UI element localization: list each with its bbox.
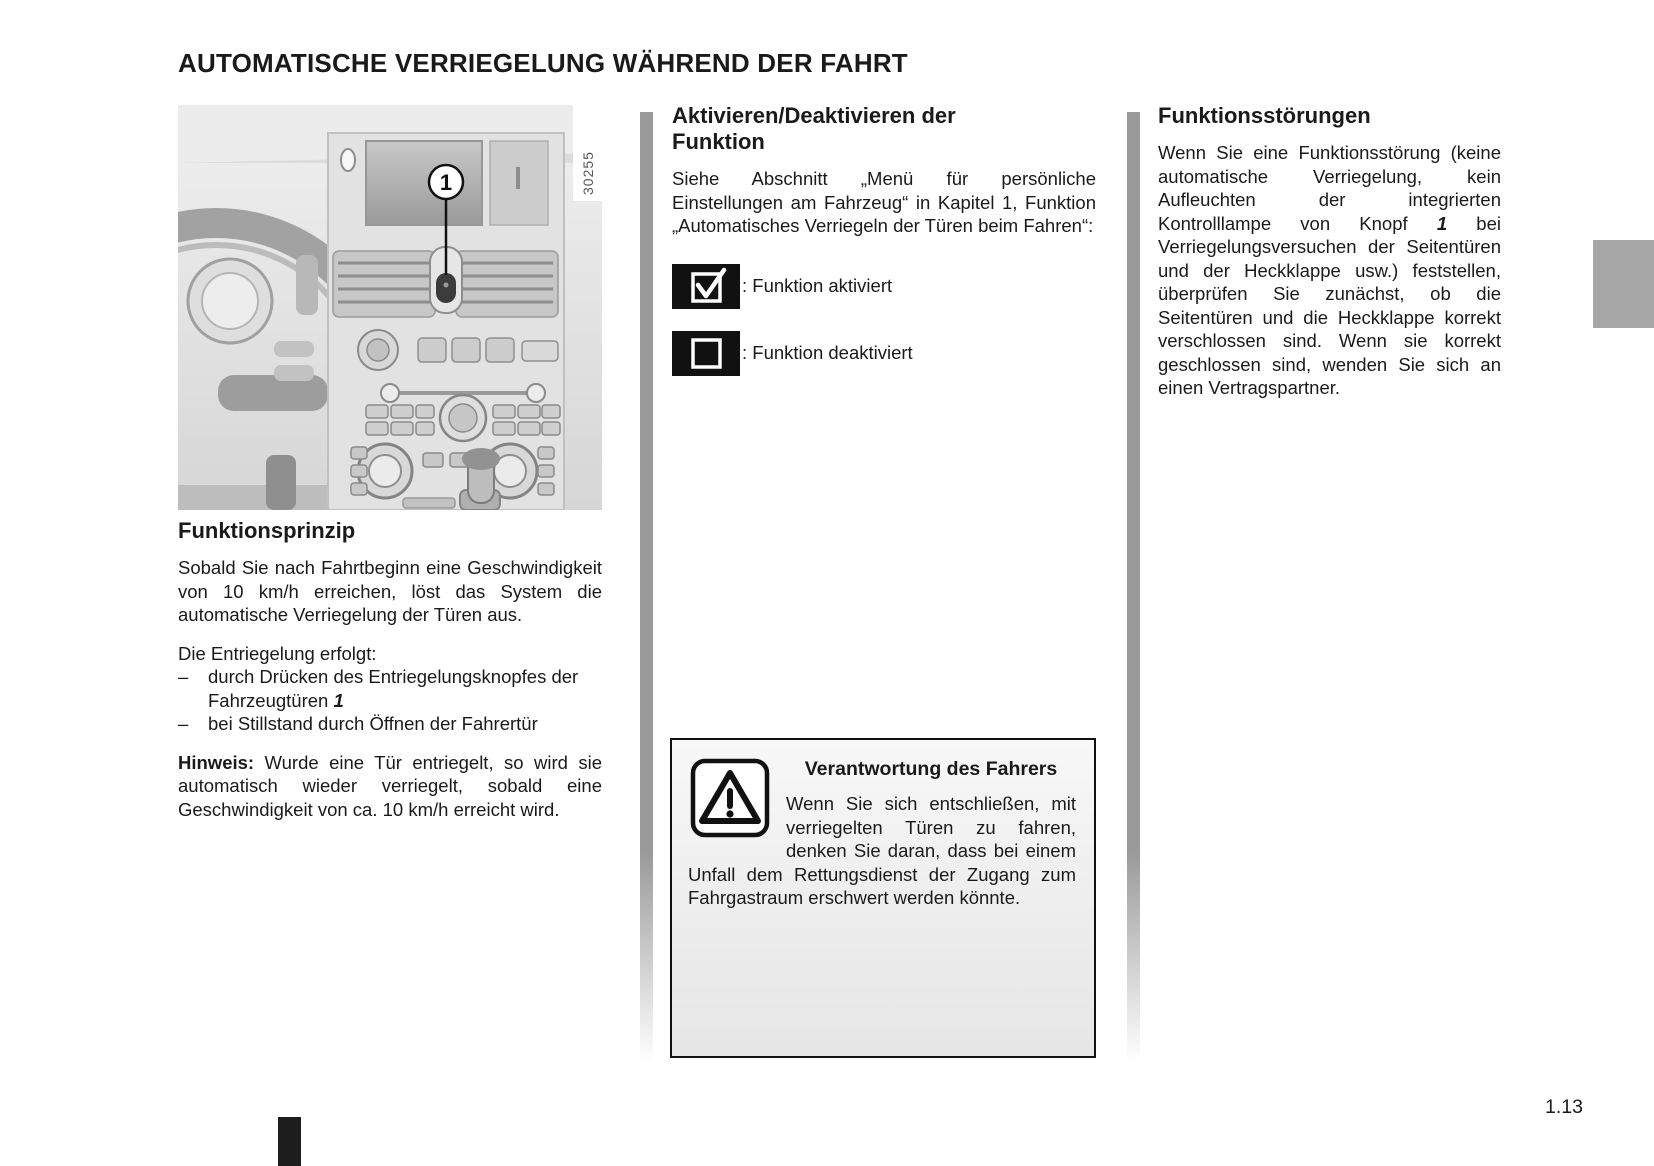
middle-heading: Aktivieren/Deaktivieren der Funktion bbox=[672, 103, 1017, 155]
warning-triangle-icon bbox=[690, 758, 770, 838]
manual-page: AUTOMATISCHE VERRIEGELUNG WÄHREND DER FA… bbox=[0, 0, 1654, 1166]
note-label: Hinweis: bbox=[178, 752, 254, 773]
left-heading: Funktionsprinzip bbox=[178, 518, 602, 544]
bullet-item: – bei Stillstand durch Öffnen der Fahrer… bbox=[178, 712, 602, 736]
bullet-text: bei Stillstand durch Öffnen der Fahrertü… bbox=[208, 712, 602, 736]
column-divider-2 bbox=[1127, 112, 1140, 1062]
photo-ref-number: 30255 bbox=[580, 151, 596, 195]
right-paragraph-1: Wenn Sie eine Funktionsstörung (keine au… bbox=[1158, 141, 1501, 400]
dashboard-illustration: 1 bbox=[178, 105, 602, 510]
button-1-reference: 1 bbox=[1437, 213, 1447, 234]
bullet-dash: – bbox=[178, 665, 208, 712]
checkbox-unchecked-icon bbox=[672, 331, 740, 376]
bullet-item: – durch Drücken des Entriegelungsknopfes… bbox=[178, 665, 602, 712]
section-edge-tab bbox=[1593, 240, 1654, 328]
bullet-text-body: durch Drücken des Entriegelungsknopfes d… bbox=[208, 666, 578, 711]
right-column: Funktionsstörungen Wenn Sie eine Funktio… bbox=[1158, 103, 1501, 415]
list-intro: Die Entriegelung erfolgt: bbox=[178, 642, 602, 666]
checkbox-checked-icon bbox=[672, 264, 740, 309]
column-divider-1 bbox=[640, 112, 653, 1062]
photo-ref-strip: 30255 bbox=[573, 105, 602, 201]
right-text-part2: bei Verriegelungsversuchen der Seitentür… bbox=[1158, 213, 1501, 399]
button-1-reference: 1 bbox=[333, 690, 343, 711]
callout-number: 1 bbox=[440, 170, 452, 195]
dashboard-figure: 1 bbox=[178, 105, 602, 510]
page-title: AUTOMATISCHE VERRIEGELUNG WÄHREND DER FA… bbox=[178, 48, 1278, 79]
bullet-dash: – bbox=[178, 712, 208, 736]
bullet-text-body: bei Stillstand durch Öffnen der Fahrertü… bbox=[208, 713, 538, 734]
option-activated-label: : Funktion aktiviert bbox=[742, 275, 892, 297]
central-lock-button bbox=[436, 273, 456, 303]
note-paragraph: Hinweis: Wurde eine Tür entriegelt, so w… bbox=[178, 751, 602, 822]
option-deactivated-label: : Funktion deaktiviert bbox=[742, 342, 913, 364]
middle-column: Aktivieren/Deaktivieren der Funktion Sie… bbox=[672, 103, 1096, 376]
option-row-deactivated: : Funktion deaktiviert bbox=[672, 331, 1096, 376]
option-row-activated: : Funktion aktiviert bbox=[672, 264, 1096, 309]
middle-paragraph-1: Siehe Abschnitt „Menü für persönliche Ei… bbox=[672, 167, 1096, 238]
driver-responsibility-warning-box: Verantwortung des Fahrers Wenn Sie sich … bbox=[670, 738, 1096, 1058]
left-column: Funktionsprinzip Sobald Sie nach Fahrtbe… bbox=[178, 518, 602, 836]
print-registration-mark bbox=[278, 1117, 301, 1166]
bullet-text: durch Drücken des Entriegelungsknopfes d… bbox=[208, 665, 602, 712]
right-heading: Funktionsstörungen bbox=[1158, 103, 1501, 129]
page-number: 1.13 bbox=[1430, 1096, 1583, 1119]
left-paragraph-1: Sobald Sie nach Fahrtbeginn eine Geschwi… bbox=[178, 556, 602, 627]
